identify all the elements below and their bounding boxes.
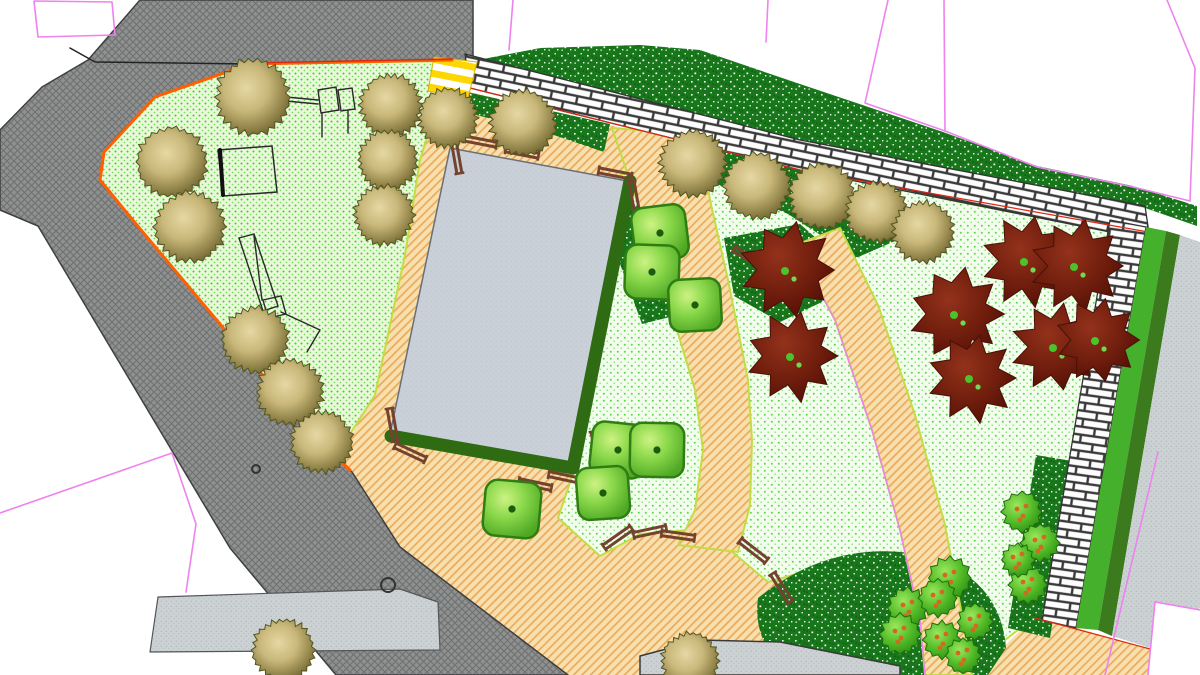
fruit-dot: [1039, 545, 1044, 550]
fruit-dot: [1014, 566, 1019, 571]
red-tree-center-mark: [791, 276, 796, 281]
parcel-boundary: [509, 0, 513, 50]
fruit-dot: [934, 604, 939, 609]
fruit-dot: [1027, 587, 1032, 592]
parcel-boundary: [944, 0, 945, 131]
topiary-shrub: [482, 479, 543, 540]
fruit-dot: [971, 628, 976, 633]
fruit-dot: [952, 570, 957, 575]
fruit-dot: [968, 617, 973, 622]
topiary-shrub: [630, 423, 685, 478]
fruit-dot: [937, 600, 942, 605]
fruit-dot: [1021, 514, 1026, 519]
fruit-dot: [1024, 591, 1029, 596]
red-tree-center-mark: [1020, 258, 1028, 266]
fruit-dot: [1017, 562, 1022, 567]
red-tree-center-mark: [781, 267, 789, 275]
fruit-dot: [931, 593, 936, 598]
fruit-dot: [1015, 507, 1020, 512]
fruit-dot: [1021, 580, 1026, 585]
red-tree-center-mark: [1070, 263, 1078, 271]
fruit-dot: [902, 626, 907, 631]
fruit-dot: [1020, 552, 1025, 557]
parcel-white-corner: [1148, 602, 1200, 675]
fruit-dot: [896, 640, 901, 645]
red-tree-center-mark: [1080, 272, 1085, 277]
fruit-dot: [910, 600, 915, 605]
fruit-dot: [941, 642, 946, 647]
red-tree-center-mark: [796, 362, 801, 367]
fruit-dot: [901, 603, 906, 608]
plan-layers: [0, 0, 1200, 675]
red-tree-center-mark: [950, 311, 958, 319]
fruit-dot: [1011, 555, 1016, 560]
parcel-boundary: [766, 0, 768, 42]
fruit-dot: [965, 648, 970, 653]
fruit-dot: [1030, 577, 1035, 582]
fruit-dot: [943, 573, 948, 578]
red-tree-center-mark: [1101, 346, 1106, 351]
fruit-dot: [1036, 549, 1041, 554]
fruit-dot: [956, 651, 961, 656]
fruit-dot: [899, 636, 904, 641]
fruit-dot: [935, 635, 940, 640]
fruit-dot: [1018, 518, 1023, 523]
fruit-dot: [1033, 538, 1038, 543]
fruit-dot: [893, 629, 898, 634]
red-tree-center-mark: [1030, 267, 1035, 272]
parcel-boundary: [0, 453, 196, 592]
topiary-shrub: [668, 278, 723, 333]
fruit-dot: [1024, 504, 1029, 509]
site-plan-drawing: [0, 0, 1200, 675]
red-tree-center-mark: [975, 384, 980, 389]
fruit-dot: [940, 590, 945, 595]
fruit-dot: [974, 624, 979, 629]
fruit-dot: [962, 658, 967, 663]
parcel-outline: [34, 1, 115, 37]
fruit-dot: [1042, 535, 1047, 540]
fruit-dot: [938, 646, 943, 651]
red-tree-center-mark: [1049, 344, 1057, 352]
fruit-dot: [907, 610, 912, 615]
red-tree-center-mark: [1091, 337, 1099, 345]
fruit-dot: [949, 580, 954, 585]
landscape-site-plan: [0, 0, 1200, 675]
red-tree-center-mark: [786, 353, 794, 361]
fruit-dot: [977, 614, 982, 619]
fruit-dot: [959, 662, 964, 667]
fruit-dot: [944, 632, 949, 637]
red-tree-center-mark: [960, 320, 965, 325]
red-tree-center-mark: [965, 375, 973, 383]
topiary-shrub: [575, 465, 631, 521]
